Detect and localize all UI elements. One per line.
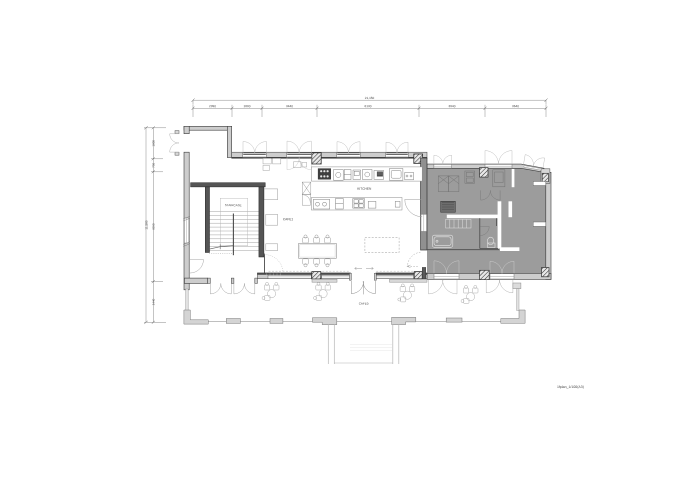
- svg-text:CAFE1: CAFE1: [283, 217, 294, 221]
- svg-text:21,150: 21,150: [365, 96, 375, 100]
- svg-text:KITCHEN: KITCHEN: [357, 187, 372, 191]
- svg-text:3440: 3440: [286, 104, 293, 108]
- svg-text:3940: 3940: [449, 104, 456, 108]
- svg-text:2390: 2390: [209, 104, 216, 108]
- svg-text:1800: 1800: [244, 104, 251, 108]
- svg-text:2440: 2440: [152, 298, 156, 305]
- svg-text:1fplan_1/100(A3): 1fplan_1/100(A3): [557, 385, 584, 389]
- svg-text:6590: 6590: [152, 223, 156, 230]
- svg-text:3640: 3640: [512, 104, 519, 108]
- svg-text:6130: 6130: [365, 104, 372, 108]
- svg-text:1800: 1800: [152, 140, 156, 147]
- svg-text:11,580: 11,580: [144, 220, 148, 230]
- svg-text:STAIRCASE: STAIRCASE: [225, 203, 242, 207]
- svg-text:CAFE0: CAFE0: [359, 302, 369, 306]
- svg-text:750: 750: [152, 162, 156, 167]
